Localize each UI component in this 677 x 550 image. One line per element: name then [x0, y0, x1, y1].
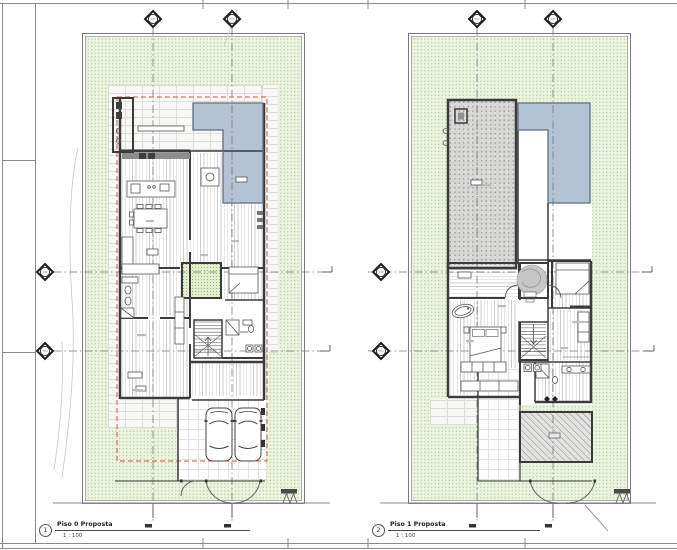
view-title-1: Piso 0 Proposta: [57, 521, 113, 528]
back-rooms-floor: [122, 320, 188, 398]
room-under-pool-plan2: [548, 203, 592, 262]
paving-plan1-bottom: [108, 398, 178, 428]
garage-roof-plan2: [520, 412, 592, 462]
view-title-underline-2: [388, 530, 540, 531]
street-line: [53, 503, 656, 531]
closet-hall-floor: [550, 310, 591, 360]
bedroom2-floor: [552, 263, 590, 308]
plan-sheet: 1 Piso 0 Proposta 1 : 100 2 Piso 1 Propo…: [0, 0, 677, 550]
roof-terrace-plan2: [448, 100, 516, 268]
pool-void-plan2: [518, 103, 590, 130]
carport-tiles-plan1: [178, 398, 266, 480]
pool-plan1: [193, 103, 263, 130]
bedroom-floor-plan1: [224, 268, 263, 299]
corridor-floor: [122, 270, 188, 316]
upper-hall-floor: [450, 265, 518, 297]
view-number-1: 1: [39, 524, 52, 537]
view-number-2: 2: [372, 524, 385, 537]
inner-courtyard-plan1: [182, 263, 221, 298]
view-scale-2: 1 : 100: [396, 533, 415, 539]
entry-path-plan2: [478, 368, 520, 480]
view-scale-1: 1 : 100: [63, 533, 82, 539]
kitchen-living-floor: [122, 153, 188, 267]
pool-plan1-leg: [223, 130, 263, 203]
pool-void-plan2-leg: [548, 130, 590, 203]
view-title-underline-1: [55, 530, 250, 531]
hall-column-plan2: [514, 126, 550, 262]
garage-room-floor: [192, 362, 263, 396]
bathroom-floor-plan2: [535, 362, 591, 402]
paving-plan2-bottom: [430, 399, 478, 425]
view-title-2: Piso 1 Proposta: [390, 521, 446, 528]
